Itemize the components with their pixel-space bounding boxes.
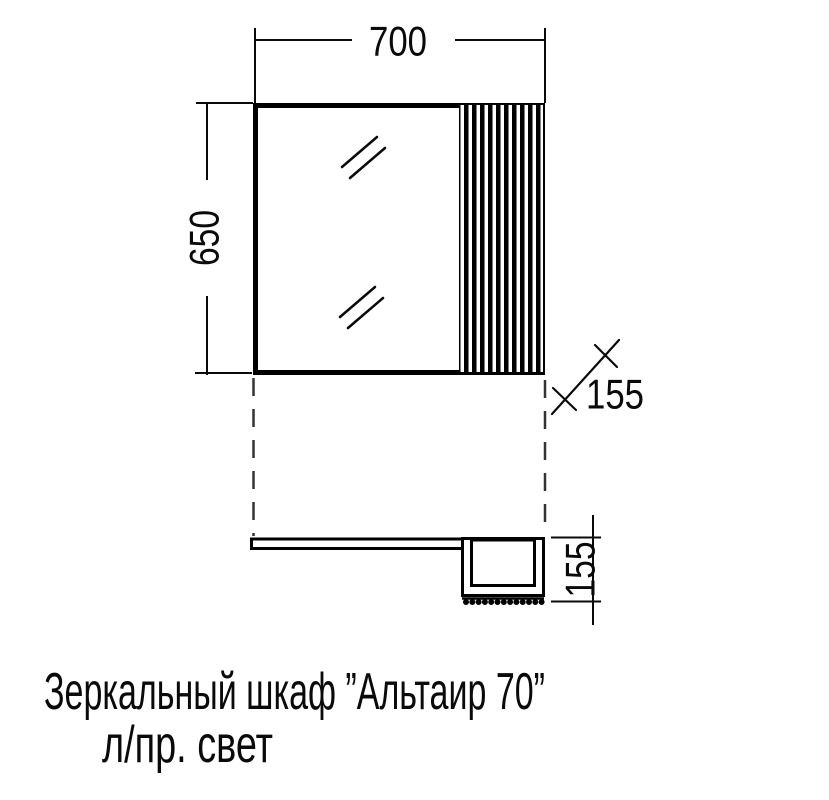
technical-drawing-canvas: 700 650 155 bbox=[0, 0, 829, 800]
depth-diagonal-label: 155 bbox=[586, 371, 644, 418]
plan-depth-label: 155 bbox=[557, 542, 604, 598]
ribbed-light-panel bbox=[459, 105, 543, 372]
caption: Зеркальный шкаф ”Альтаир 70” л/пр. свет bbox=[44, 663, 545, 774]
caption-product-name: Зеркальный шкаф ”Альтаир 70” bbox=[44, 663, 545, 721]
technical-drawing-page: 700 650 155 bbox=[0, 0, 829, 800]
caption-variant: л/пр. свет bbox=[102, 716, 273, 774]
height-dimension-label: 650 bbox=[181, 210, 228, 266]
plan-view bbox=[252, 539, 545, 603]
front-view bbox=[256, 105, 544, 373]
width-dimension-label: 700 bbox=[369, 18, 427, 65]
projection-lines bbox=[254, 378, 546, 536]
plan-cabinet-body-inner bbox=[472, 540, 535, 586]
plan-mirror-door bbox=[252, 539, 463, 549]
